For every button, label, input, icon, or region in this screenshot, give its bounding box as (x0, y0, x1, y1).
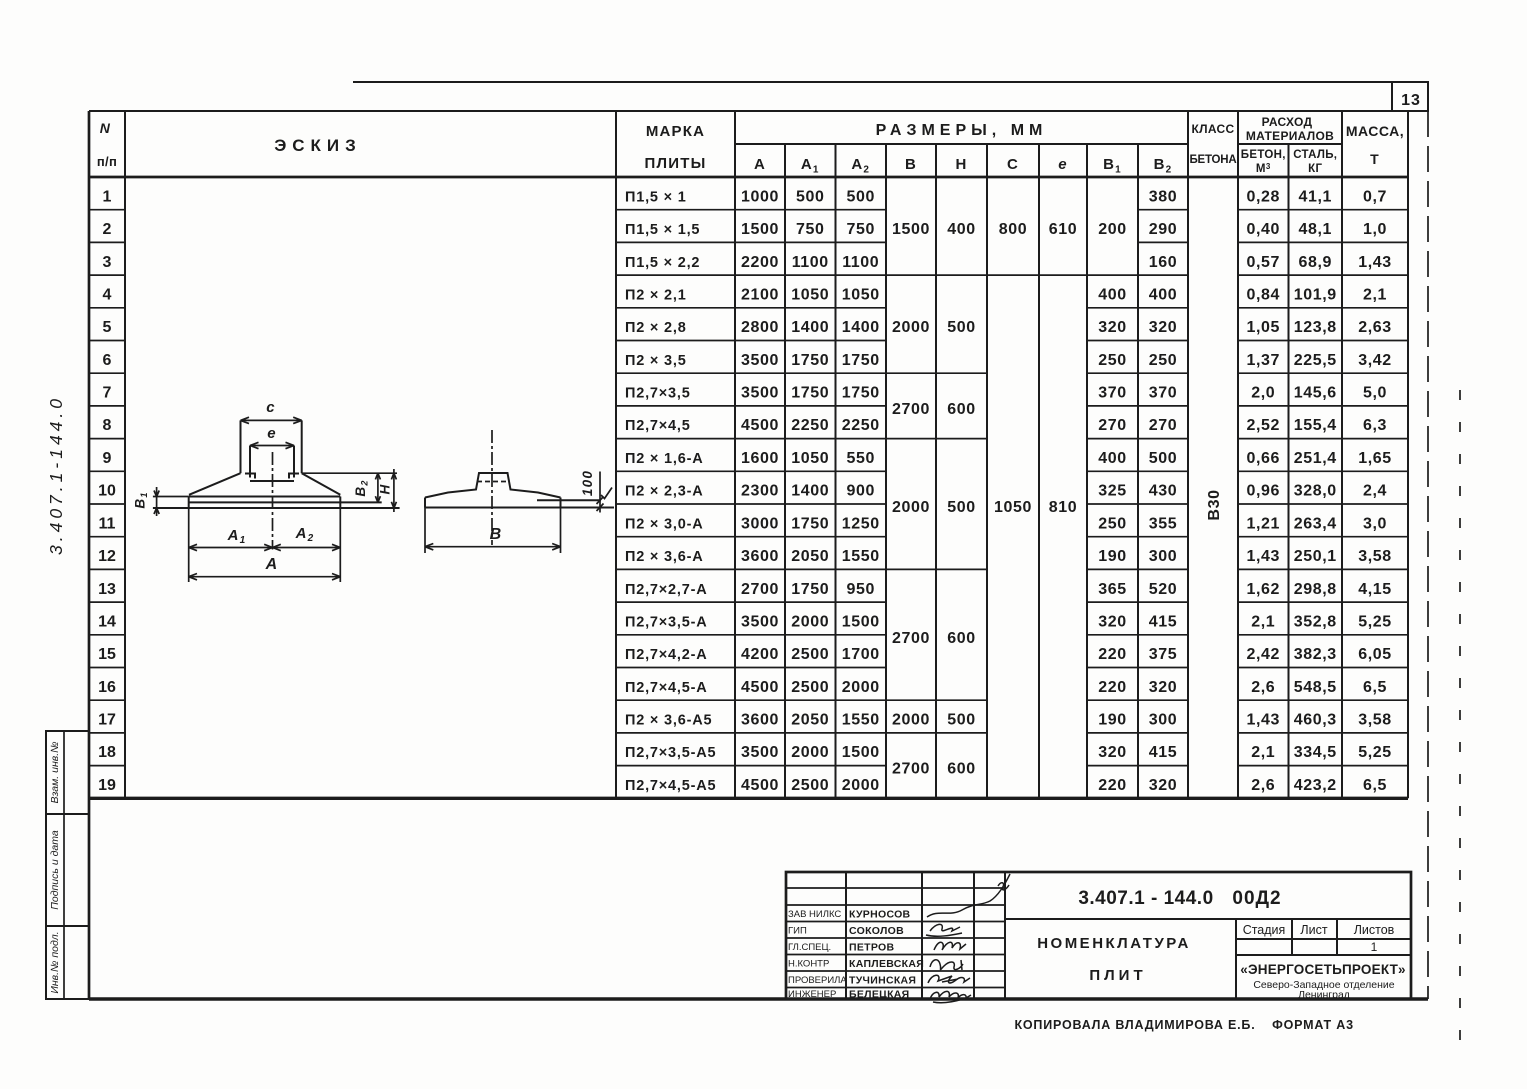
svg-text:А2: А2 (295, 525, 315, 544)
svg-text:3,58: 3,58 (1358, 712, 1392, 729)
svg-text:1,43: 1,43 (1246, 548, 1280, 565)
svg-text:МАРКА: МАРКА (646, 123, 705, 140)
svg-text:600: 600 (947, 401, 976, 418)
svg-text:П2 × 3,0-А: П2 × 3,0-А (625, 516, 703, 532)
svg-text:е: е (1058, 156, 1068, 173)
svg-text:8: 8 (103, 417, 112, 434)
svg-text:1250: 1250 (842, 515, 880, 532)
svg-text:2,1: 2,1 (1363, 286, 1387, 303)
svg-text:1400: 1400 (791, 319, 829, 336)
svg-text:2,1: 2,1 (1251, 744, 1275, 761)
svg-text:БЕЛЕЦКАЯ: БЕЛЕЦКАЯ (849, 989, 910, 1001)
svg-text:МАССА,: МАССА, (1346, 123, 1404, 139)
svg-text:Лист: Лист (1300, 923, 1327, 937)
svg-text:500: 500 (1149, 450, 1178, 467)
svg-text:2,4: 2,4 (1363, 483, 1387, 500)
svg-text:1100: 1100 (842, 254, 879, 271)
svg-text:11: 11 (99, 515, 116, 532)
svg-text:2,42: 2,42 (1246, 646, 1280, 663)
svg-text:П2 × 2,8: П2 × 2,8 (625, 320, 687, 336)
svg-text:КЛАСС: КЛАСС (1192, 122, 1235, 136)
svg-text:220: 220 (1098, 646, 1127, 663)
svg-text:2,6: 2,6 (1251, 777, 1275, 794)
svg-text:1,62: 1,62 (1246, 581, 1280, 598)
svg-text:0,40: 0,40 (1246, 221, 1280, 238)
svg-text:П2,7×3,5-А: П2,7×3,5-А (625, 614, 708, 630)
svg-text:1750: 1750 (791, 385, 829, 402)
svg-text:3000: 3000 (741, 515, 779, 532)
svg-text:Подпись и дата: Подпись и дата (49, 830, 61, 910)
svg-text:1500: 1500 (741, 221, 779, 238)
svg-text:1050: 1050 (994, 499, 1032, 516)
svg-text:460,3: 460,3 (1294, 712, 1337, 729)
svg-text:П2 × 2,1: П2 × 2,1 (625, 287, 687, 303)
svg-text:500: 500 (947, 499, 976, 516)
svg-text:500: 500 (796, 188, 825, 205)
svg-text:3,0: 3,0 (1363, 515, 1387, 532)
svg-text:1700: 1700 (842, 646, 880, 663)
svg-text:365: 365 (1098, 581, 1127, 598)
svg-text:380: 380 (1149, 188, 1178, 205)
svg-text:П2 × 3,6-А: П2 × 3,6-А (625, 549, 703, 565)
svg-text:ТУЧИНСКАЯ: ТУЧИНСКАЯ (849, 975, 916, 987)
svg-text:520: 520 (1149, 581, 1178, 598)
svg-text:1550: 1550 (842, 548, 880, 565)
svg-text:4500: 4500 (741, 777, 779, 794)
svg-text:1,05: 1,05 (1246, 319, 1280, 336)
svg-text:320: 320 (1098, 319, 1127, 336)
svg-text:423,2: 423,2 (1294, 777, 1337, 794)
svg-text:с: с (266, 399, 276, 416)
svg-text:1750: 1750 (791, 581, 829, 598)
svg-text:П1,5 × 1: П1,5 × 1 (625, 189, 687, 205)
svg-text:320: 320 (1098, 613, 1127, 630)
svg-text:750: 750 (847, 221, 876, 238)
svg-text:БЕТОН,: БЕТОН, (1241, 149, 1286, 161)
svg-text:1500: 1500 (842, 613, 880, 630)
svg-text:251,4: 251,4 (1294, 450, 1337, 467)
svg-text:3600: 3600 (741, 712, 779, 729)
svg-text:0,66: 0,66 (1246, 450, 1280, 467)
svg-text:320: 320 (1149, 319, 1178, 336)
svg-text:1100: 1100 (792, 254, 829, 271)
svg-text:1750: 1750 (791, 515, 829, 532)
svg-text:2500: 2500 (791, 679, 829, 696)
svg-text:290: 290 (1149, 221, 1178, 238)
svg-text:М3: М3 (1256, 162, 1271, 175)
svg-text:2,6: 2,6 (1251, 679, 1275, 696)
svg-text:18: 18 (98, 744, 116, 761)
svg-text:КОПИРОВАЛА ВЛАДИМИРОВА Е.Б.: КОПИРОВАЛА ВЛАДИМИРОВА Е.Б. (1014, 1018, 1255, 1032)
svg-text:500: 500 (947, 319, 976, 336)
svg-text:500: 500 (947, 712, 976, 729)
svg-text:2,1: 2,1 (1251, 613, 1275, 630)
svg-text:2300: 2300 (741, 483, 779, 500)
svg-text:А: А (754, 156, 766, 173)
svg-text:155,4: 155,4 (1294, 417, 1337, 434)
svg-text:П2,7×3,5-А5: П2,7×3,5-А5 (625, 745, 716, 761)
svg-text:2000: 2000 (791, 613, 829, 630)
svg-text:4,15: 4,15 (1358, 581, 1392, 598)
svg-text:е: е (267, 425, 277, 442)
svg-text:3500: 3500 (741, 744, 779, 761)
svg-text:3,58: 3,58 (1358, 548, 1392, 565)
svg-text:П2 × 2,3-А: П2 × 2,3-А (625, 484, 703, 500)
svg-text:3500: 3500 (741, 385, 779, 402)
svg-text:Инв.№ подл.: Инв.№ подл. (49, 931, 61, 993)
svg-text:7: 7 (103, 385, 112, 402)
svg-text:П1,5 × 2,2: П1,5 × 2,2 (625, 255, 700, 271)
svg-text:ПЕТРОВ: ПЕТРОВ (849, 942, 894, 954)
svg-text:190: 190 (1098, 712, 1127, 729)
svg-text:500: 500 (847, 188, 876, 205)
svg-text:415: 415 (1149, 744, 1178, 761)
svg-text:2,52: 2,52 (1246, 417, 1280, 434)
svg-text:48,1: 48,1 (1298, 221, 1332, 238)
svg-text:КГ: КГ (1308, 163, 1322, 175)
svg-text:Н.КОНТР: Н.КОНТР (788, 959, 829, 970)
svg-text:П2 × 3,6-А5: П2 × 3,6-А5 (625, 713, 712, 729)
svg-text:1,43: 1,43 (1358, 254, 1392, 271)
svg-text:2500: 2500 (791, 777, 829, 794)
svg-text:Т: Т (1370, 151, 1380, 167)
svg-text:610: 610 (1049, 221, 1078, 238)
svg-text:2,63: 2,63 (1358, 319, 1392, 336)
svg-text:4200: 4200 (741, 646, 779, 663)
svg-text:250,1: 250,1 (1294, 548, 1337, 565)
svg-text:200: 200 (1098, 221, 1127, 238)
svg-text:2700: 2700 (741, 581, 779, 598)
svg-text:6,3: 6,3 (1363, 417, 1387, 434)
svg-text:СОКОЛОВ: СОКОЛОВ (849, 925, 904, 937)
svg-text:Стадия: Стадия (1243, 923, 1286, 937)
svg-text:2: 2 (103, 221, 112, 238)
svg-text:220: 220 (1098, 679, 1127, 696)
svg-text:3500: 3500 (741, 352, 779, 369)
svg-text:1500: 1500 (892, 221, 930, 238)
svg-text:5,25: 5,25 (1358, 744, 1392, 761)
svg-text:2000: 2000 (842, 777, 880, 794)
svg-text:548,5: 548,5 (1294, 679, 1337, 696)
svg-text:2800: 2800 (741, 319, 779, 336)
svg-text:РАСХОД: РАСХОД (1262, 115, 1313, 129)
svg-text:600: 600 (947, 761, 976, 778)
svg-text:160: 160 (1149, 254, 1178, 271)
svg-text:П1,5 × 1,5: П1,5 × 1,5 (625, 222, 700, 238)
svg-text:41,1: 41,1 (1298, 188, 1332, 205)
svg-text:370: 370 (1149, 385, 1178, 402)
svg-text:В: В (490, 526, 503, 543)
svg-text:Н: Н (955, 156, 967, 173)
svg-text:ЗАВ НИЛКС: ЗАВ НИЛКС (788, 909, 841, 920)
svg-text:А: А (265, 556, 279, 573)
svg-text:225,5: 225,5 (1294, 352, 1337, 369)
svg-text:0,96: 0,96 (1246, 483, 1280, 500)
svg-text:2700: 2700 (892, 630, 930, 647)
svg-text:РАЗМЕРЫ, ММ: РАЗМЕРЫ, ММ (876, 122, 1048, 139)
svg-text:0,7: 0,7 (1363, 188, 1387, 205)
svg-text:5,25: 5,25 (1358, 613, 1392, 630)
svg-text:250: 250 (1149, 352, 1178, 369)
svg-text:ПЛИТ: ПЛИТ (1089, 967, 1146, 984)
svg-text:600: 600 (947, 630, 976, 647)
svg-text:800: 800 (999, 221, 1028, 238)
svg-text:2000: 2000 (842, 679, 880, 696)
svg-text:ИНЖЕНЕР: ИНЖЕНЕР (788, 989, 836, 1000)
svg-text:П2,7×4,2-А: П2,7×4,2-А (625, 647, 708, 663)
svg-text:0,28: 0,28 (1246, 188, 1280, 205)
svg-text:250: 250 (1098, 352, 1127, 369)
svg-text:Листов: Листов (1354, 923, 1395, 937)
svg-text:352,8: 352,8 (1294, 613, 1337, 630)
svg-text:2500: 2500 (791, 646, 829, 663)
svg-text:1500: 1500 (842, 744, 880, 761)
svg-text:А1: А1 (801, 156, 820, 176)
svg-text:1050: 1050 (842, 286, 880, 303)
svg-text:14: 14 (98, 613, 116, 630)
svg-text:П2,7×2,7-А: П2,7×2,7-А (625, 582, 708, 598)
svg-text:320: 320 (1098, 744, 1127, 761)
svg-text:2250: 2250 (842, 417, 880, 434)
svg-text:ГИП: ГИП (788, 926, 807, 937)
svg-text:375: 375 (1149, 646, 1178, 663)
svg-text:«ЭНЕРГОСЕТЬПРОЕКТ»: «ЭНЕРГОСЕТЬПРОЕКТ» (1240, 962, 1406, 977)
svg-text:12: 12 (98, 548, 116, 565)
svg-text:300: 300 (1149, 548, 1178, 565)
svg-text:6,5: 6,5 (1363, 777, 1387, 794)
svg-text:2100: 2100 (741, 286, 779, 303)
svg-text:2050: 2050 (791, 548, 829, 565)
svg-text:ГЛ.СПЕЦ.: ГЛ.СПЕЦ. (788, 942, 831, 953)
svg-text:1,37: 1,37 (1246, 352, 1280, 369)
svg-text:3,42: 3,42 (1358, 352, 1392, 369)
svg-text:1750: 1750 (842, 385, 880, 402)
svg-text:1,0: 1,0 (1363, 221, 1387, 238)
svg-text:328,0: 328,0 (1294, 483, 1337, 500)
svg-text:N: N (100, 120, 111, 136)
svg-text:10: 10 (98, 483, 116, 500)
svg-text:2,0: 2,0 (1251, 385, 1275, 402)
svg-text:1000: 1000 (741, 188, 779, 205)
svg-text:2000: 2000 (791, 744, 829, 761)
svg-text:А1: А1 (227, 527, 247, 546)
svg-text:123,8: 123,8 (1294, 319, 1337, 336)
svg-text:2250: 2250 (791, 417, 829, 434)
svg-text:220: 220 (1098, 777, 1127, 794)
svg-text:П2,7×4,5-А5: П2,7×4,5-А5 (625, 778, 716, 794)
svg-text:145,6: 145,6 (1294, 385, 1337, 402)
svg-text:ПЛИТЫ: ПЛИТЫ (645, 155, 707, 172)
svg-text:В2: В2 (353, 479, 370, 496)
svg-text:190: 190 (1098, 548, 1127, 565)
svg-text:415: 415 (1149, 613, 1178, 630)
svg-text:2000: 2000 (892, 712, 930, 729)
svg-text:п/п: п/п (97, 154, 117, 169)
svg-text:П2,7×3,5: П2,7×3,5 (625, 386, 691, 402)
svg-text:МАТЕРИАЛОВ: МАТЕРИАЛОВ (1246, 129, 1334, 143)
svg-text:0,57: 0,57 (1246, 254, 1280, 271)
svg-text:ФОРМАТ А3: ФОРМАТ А3 (1272, 1018, 1354, 1032)
svg-text:В1: В1 (1103, 156, 1122, 176)
svg-text:17: 17 (98, 712, 116, 729)
svg-text:270: 270 (1149, 417, 1178, 434)
svg-text:550: 550 (847, 450, 876, 467)
svg-text:А2: А2 (851, 156, 870, 176)
svg-text:3500: 3500 (741, 613, 779, 630)
svg-text:00Д2: 00Д2 (1232, 888, 1281, 909)
svg-text:250: 250 (1098, 515, 1127, 532)
svg-text:430: 430 (1149, 483, 1178, 500)
svg-text:320: 320 (1149, 679, 1178, 696)
svg-text:Взам. инв.№: Взам. инв.№ (49, 741, 61, 803)
svg-text:2050: 2050 (791, 712, 829, 729)
svg-text:15: 15 (98, 646, 116, 663)
svg-text:С: С (1007, 156, 1019, 173)
svg-text:1050: 1050 (791, 286, 829, 303)
svg-text:400: 400 (1098, 286, 1127, 303)
svg-text:КУРНОСОВ: КУРНОСОВ (849, 909, 911, 921)
svg-text:2200: 2200 (741, 254, 779, 271)
svg-text:В: В (905, 156, 917, 173)
svg-text:298,8: 298,8 (1294, 581, 1337, 598)
svg-text:1,21: 1,21 (1246, 515, 1280, 532)
svg-text:1400: 1400 (842, 319, 880, 336)
svg-text:П2,7×4,5: П2,7×4,5 (625, 418, 691, 434)
svg-text:3.407.1-144.0: 3.407.1-144.0 (46, 395, 66, 555)
svg-text:П2 × 1,6-А: П2 × 1,6-А (625, 451, 703, 467)
svg-text:П2 × 3,5: П2 × 3,5 (625, 353, 687, 369)
svg-text:1,65: 1,65 (1358, 450, 1392, 467)
svg-text:2000: 2000 (892, 499, 930, 516)
svg-text:1: 1 (103, 188, 112, 205)
svg-text:4500: 4500 (741, 417, 779, 434)
svg-text:1750: 1750 (842, 352, 880, 369)
svg-text:355: 355 (1149, 515, 1178, 532)
svg-text:370: 370 (1098, 385, 1127, 402)
svg-text:1550: 1550 (842, 712, 880, 729)
svg-text:810: 810 (1049, 499, 1078, 516)
svg-text:300: 300 (1149, 712, 1178, 729)
svg-text:6,5: 6,5 (1363, 679, 1387, 696)
svg-text:Н: Н (378, 484, 393, 495)
svg-text:270: 270 (1098, 417, 1127, 434)
svg-text:68,9: 68,9 (1298, 254, 1332, 271)
svg-text:ПРОВЕРИЛА: ПРОВЕРИЛА (788, 975, 847, 986)
svg-text:263,4: 263,4 (1294, 515, 1337, 532)
svg-text:2000: 2000 (892, 319, 930, 336)
svg-text:П2,7×4,5-А: П2,7×4,5-А (625, 680, 708, 696)
svg-text:9: 9 (103, 450, 112, 467)
svg-text:5,0: 5,0 (1363, 385, 1387, 402)
svg-text:НОМЕНКЛАТУРА: НОМЕНКЛАТУРА (1037, 935, 1191, 952)
svg-text:КАПЛЕВСКАЯ: КАПЛЕВСКАЯ (849, 958, 924, 970)
svg-text:13: 13 (1401, 92, 1421, 109)
svg-text:100: 100 (580, 470, 595, 496)
svg-text:325: 325 (1098, 483, 1127, 500)
svg-text:16: 16 (98, 679, 116, 696)
svg-text:400: 400 (947, 221, 976, 238)
svg-text:382,3: 382,3 (1294, 646, 1337, 663)
svg-text:4: 4 (103, 286, 112, 303)
svg-text:3600: 3600 (741, 548, 779, 565)
svg-text:1: 1 (1371, 940, 1378, 954)
svg-text:1600: 1600 (741, 450, 779, 467)
svg-text:750: 750 (796, 221, 825, 238)
svg-text:101,9: 101,9 (1294, 286, 1337, 303)
svg-text:400: 400 (1149, 286, 1178, 303)
svg-text:334,5: 334,5 (1294, 744, 1337, 761)
svg-text:3: 3 (103, 254, 112, 271)
svg-text:5: 5 (103, 319, 112, 336)
svg-text:320: 320 (1149, 777, 1178, 794)
svg-text:2700: 2700 (892, 401, 930, 418)
svg-text:2700: 2700 (892, 761, 930, 778)
svg-text:900: 900 (847, 483, 876, 500)
svg-text:Ленинград: Ленинград (1298, 989, 1350, 1001)
svg-text:В30: В30 (1206, 489, 1223, 520)
svg-text:1750: 1750 (791, 352, 829, 369)
svg-text:0,84: 0,84 (1246, 286, 1280, 303)
svg-text:ЭСКИЗ: ЭСКИЗ (274, 136, 362, 155)
svg-text:13: 13 (98, 581, 116, 598)
svg-text:400: 400 (1098, 450, 1127, 467)
svg-text:В1: В1 (133, 491, 150, 508)
svg-text:6: 6 (103, 352, 112, 369)
svg-text:6,05: 6,05 (1358, 646, 1392, 663)
svg-text:3.407.1 - 144.0: 3.407.1 - 144.0 (1078, 888, 1213, 909)
svg-text:4500: 4500 (741, 679, 779, 696)
svg-text:БЕТОНА: БЕТОНА (1189, 154, 1236, 166)
svg-text:950: 950 (847, 581, 876, 598)
svg-text:1,43: 1,43 (1246, 712, 1280, 729)
svg-text:19: 19 (98, 777, 116, 794)
svg-text:СТАЛЬ,: СТАЛЬ, (1293, 149, 1337, 161)
svg-text:1050: 1050 (791, 450, 829, 467)
svg-text:В2: В2 (1154, 156, 1173, 176)
svg-text:1400: 1400 (791, 483, 829, 500)
